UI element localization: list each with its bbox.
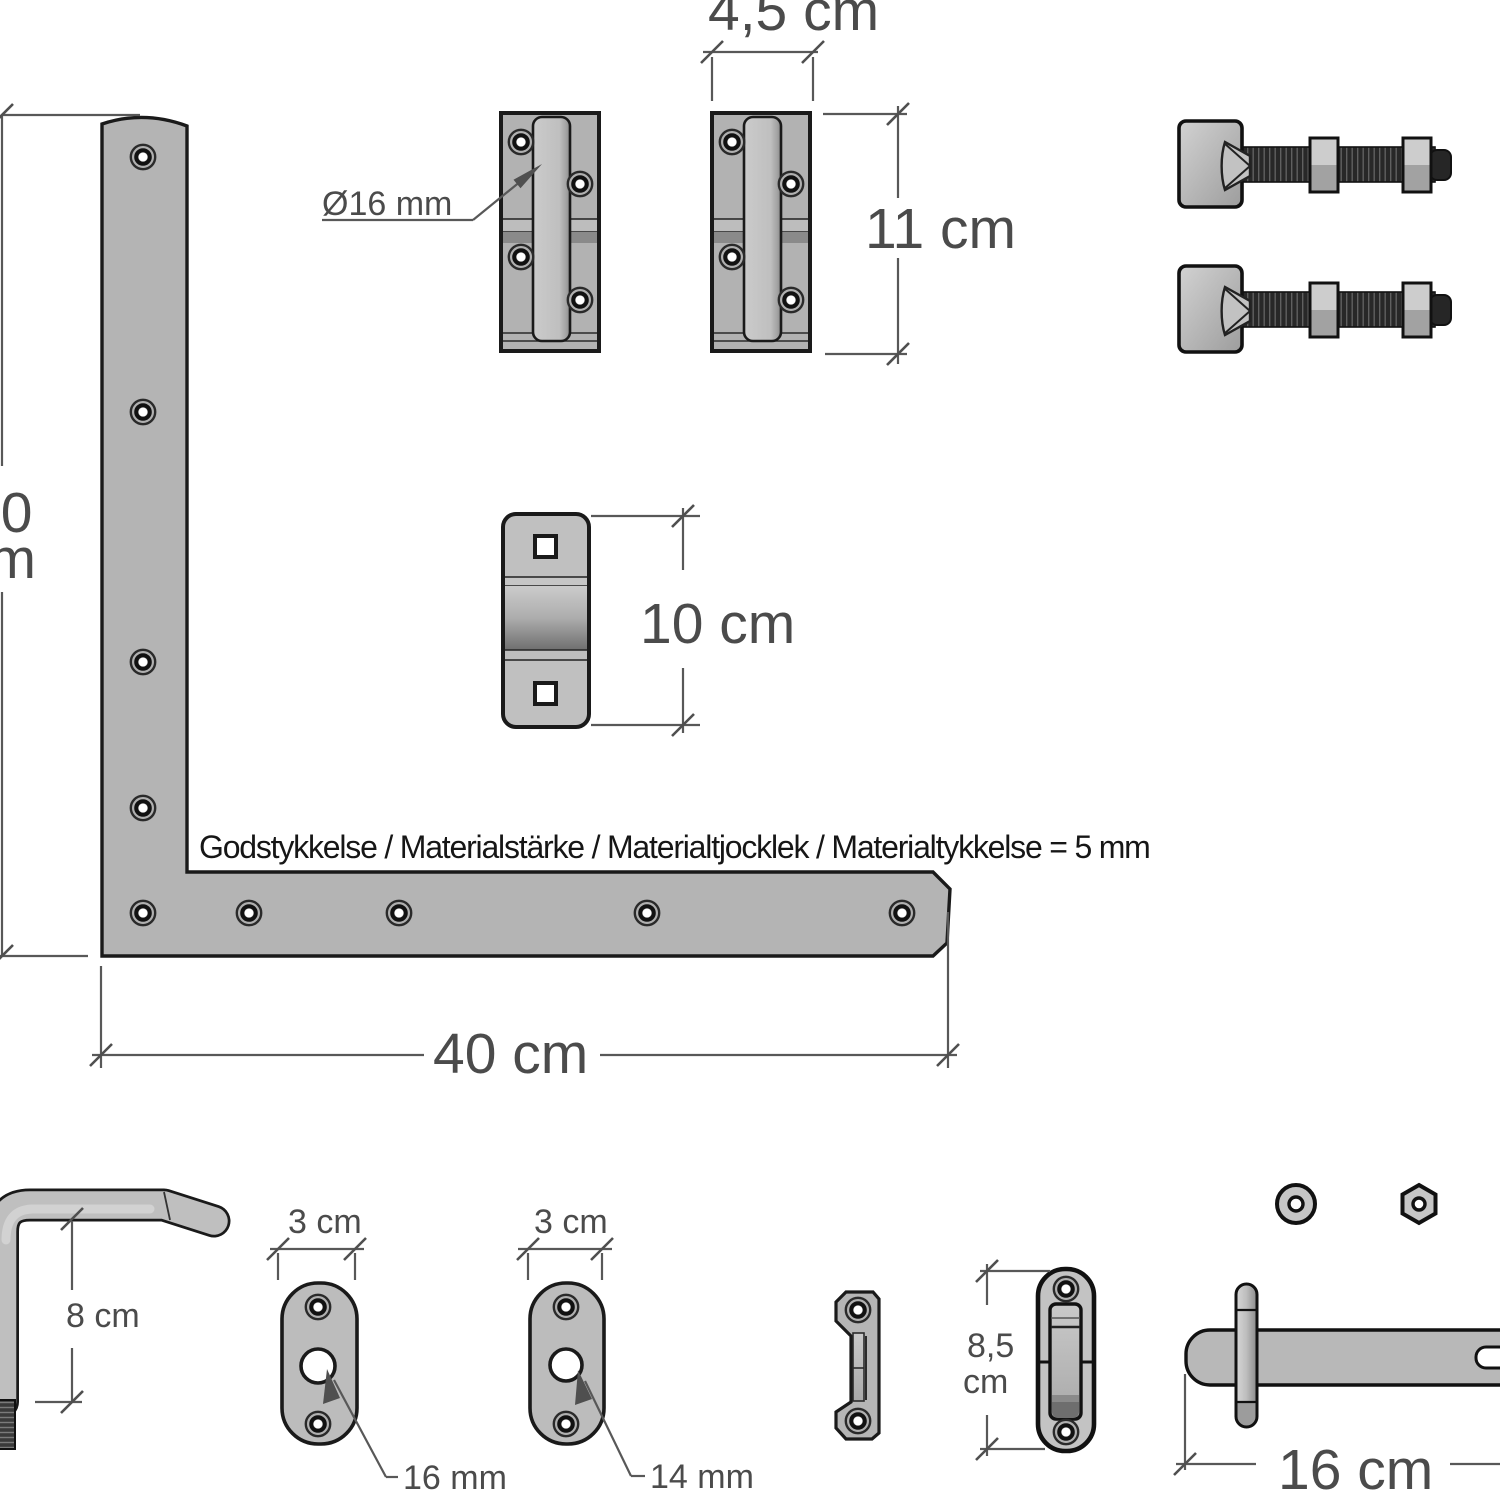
svg-text:8,5: 8,5 [967, 1327, 1014, 1365]
svg-text:11 cm: 11 cm [865, 197, 1016, 261]
svg-text:Ø16 mm: Ø16 mm [322, 185, 452, 223]
svg-text:14 mm: 14 mm [650, 1458, 754, 1496]
svg-text:3 cm: 3 cm [534, 1203, 608, 1241]
svg-text:Godstykkelse / Materialstärke: Godstykkelse / Materialstärke / Material… [199, 829, 1150, 865]
svg-text:cm: cm [963, 1363, 1008, 1401]
svg-text:4,5 cm: 4,5 cm [708, 0, 879, 43]
svg-text:3 cm: 3 cm [288, 1203, 362, 1241]
svg-text:40 cm: 40 cm [433, 1022, 588, 1086]
svg-text:16 cm: 16 cm [1278, 1438, 1433, 1500]
svg-text:8 cm: 8 cm [66, 1297, 140, 1335]
svg-text:16 mm: 16 mm [403, 1459, 507, 1497]
svg-text:cm: cm [0, 527, 36, 591]
svg-text:10 cm: 10 cm [640, 592, 795, 656]
